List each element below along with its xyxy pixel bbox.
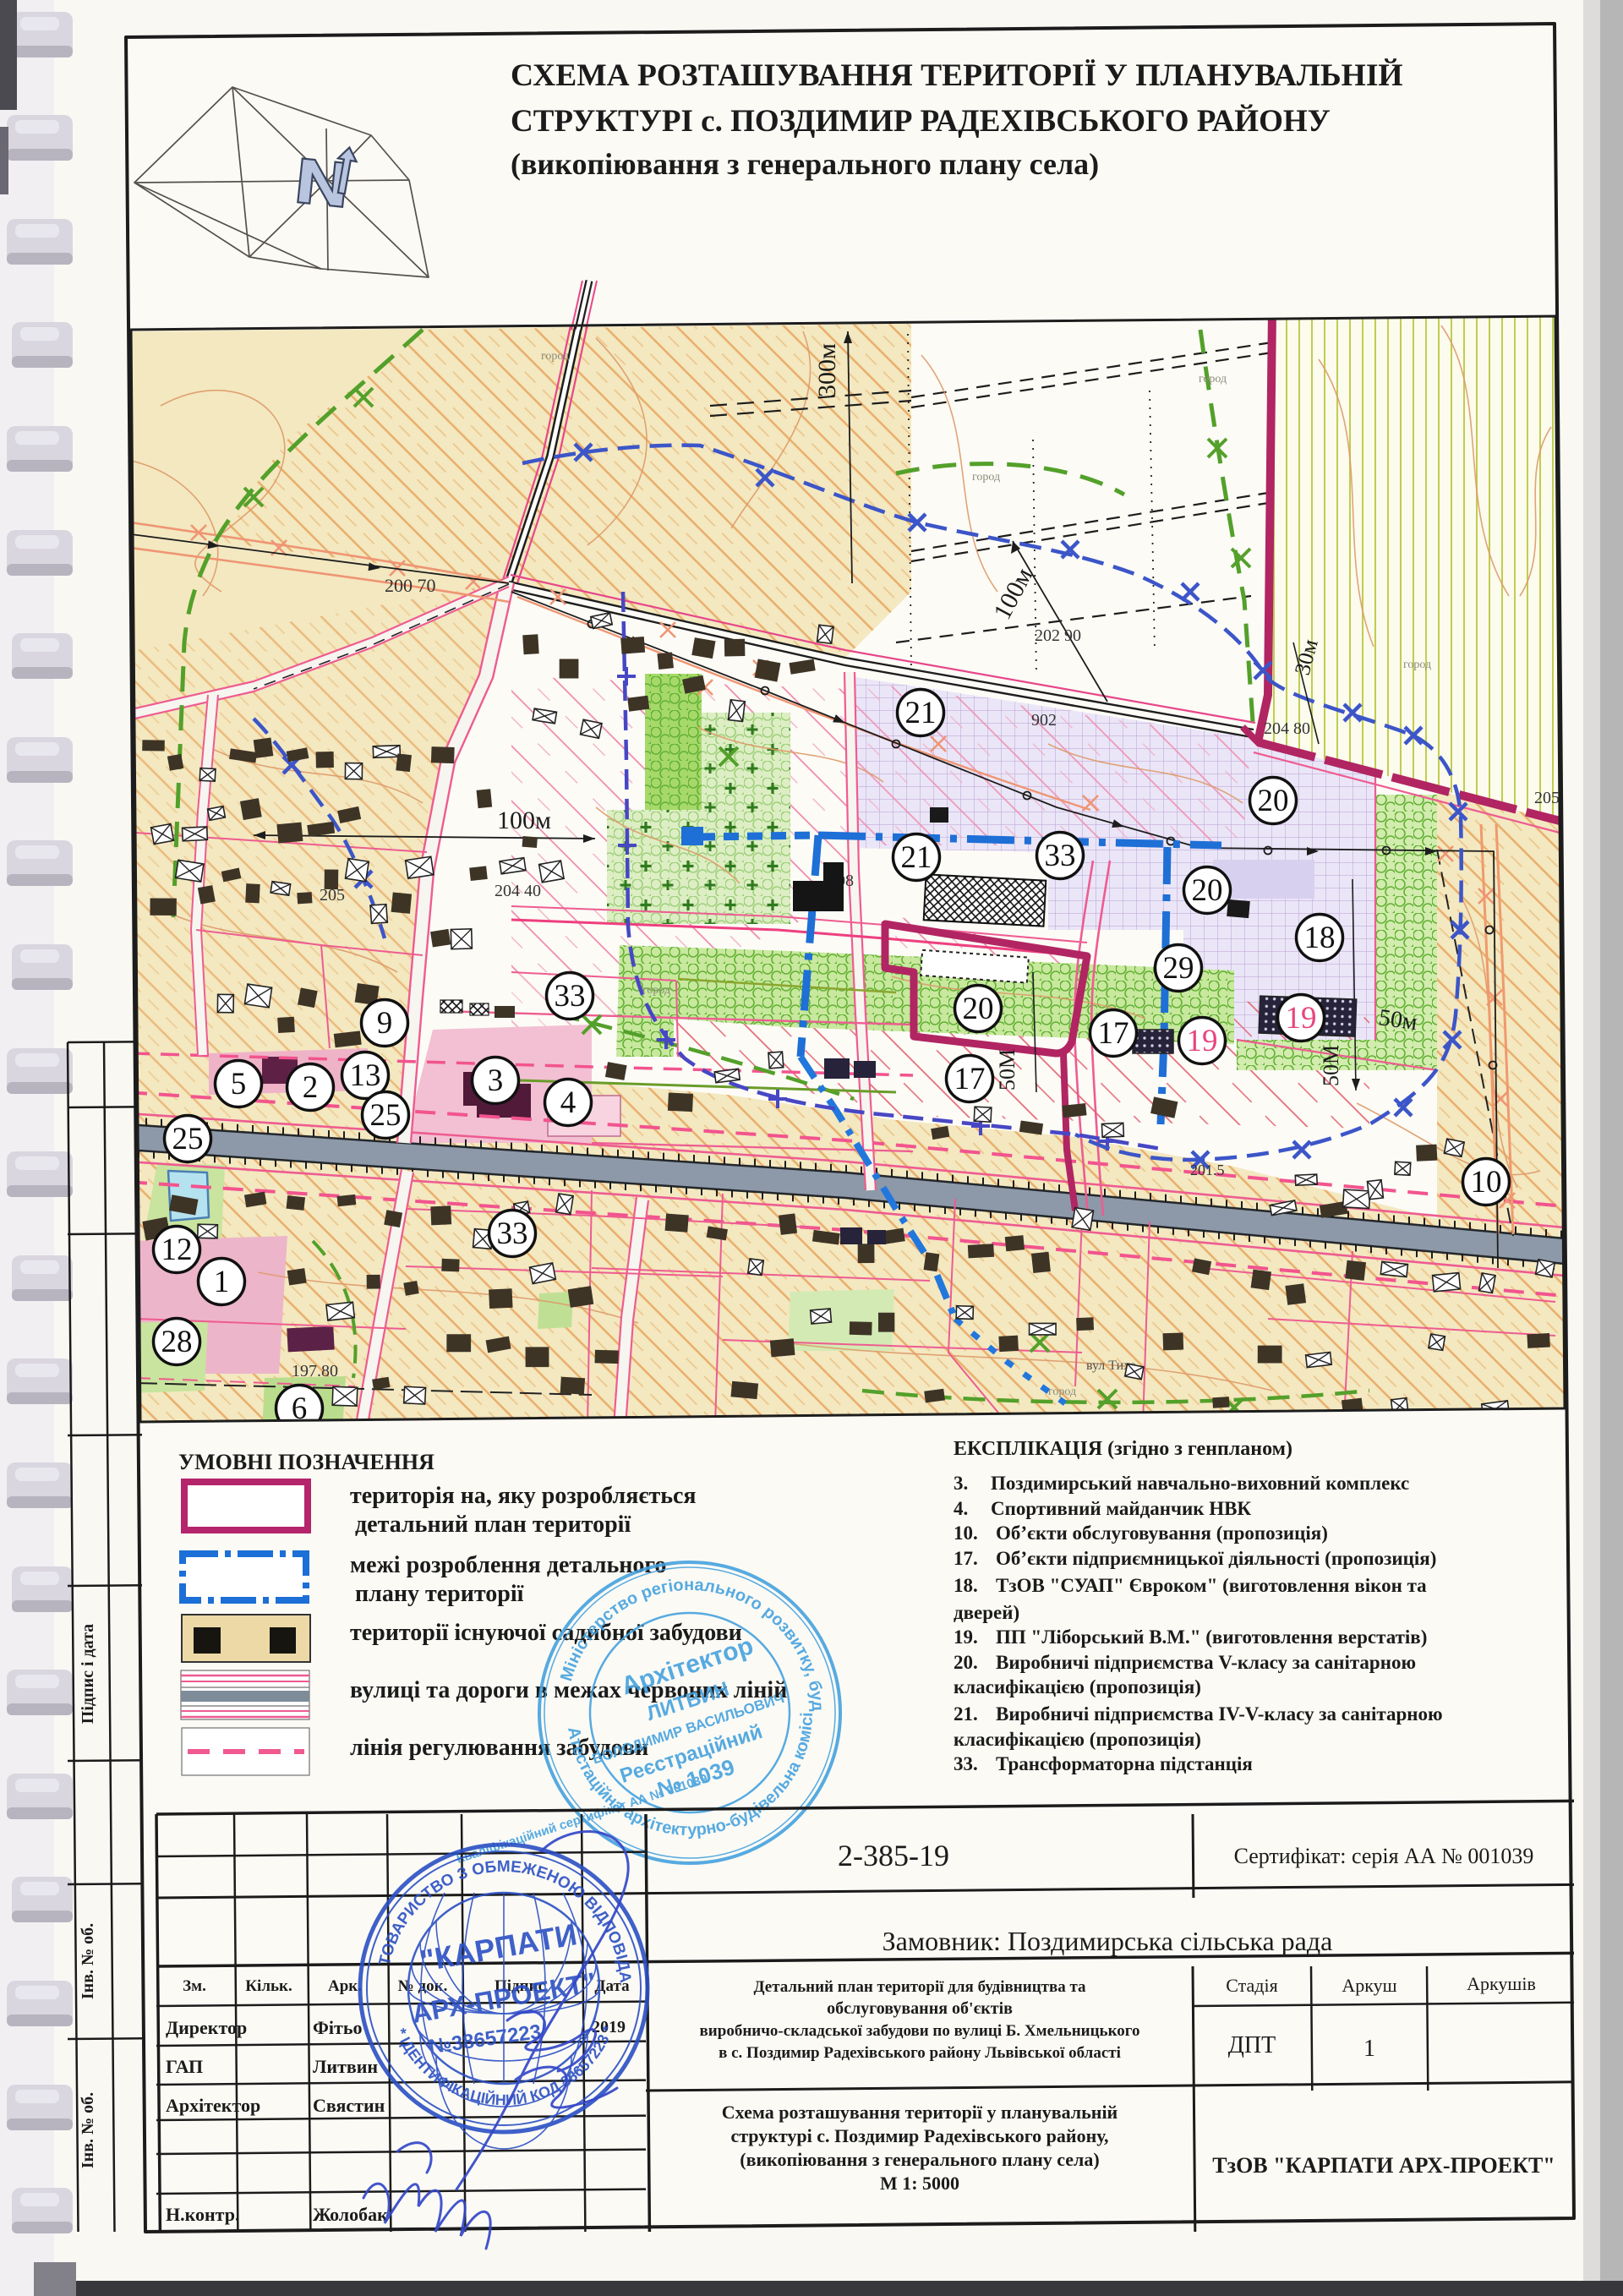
svg-text:20.: 20. [954,1652,978,1673]
svg-text:город: город [642,984,670,997]
svg-text:10.: 10. [954,1522,978,1544]
svg-text:території існуючої садибної за: території існуючої садибної забудови [350,1620,742,1646]
svg-text:Обʼєкти обслуговування (пропоз: Обʼєкти обслуговування (пропозиція) [996,1522,1328,1544]
svg-text:33.: 33. [954,1753,978,1774]
svg-text:20: 20 [963,992,994,1026]
svg-text:20: 20 [1192,873,1223,908]
svg-text:Архітектор: Архітектор [166,2095,260,2116]
svg-text:Фітьо: Фітьо [313,2017,362,2038]
svg-text:Свястин: Свястин [313,2095,385,2116]
svg-text:детальний план території: детальний план території [355,1512,631,1538]
svg-text:21: 21 [905,696,937,730]
svg-text:город: город [1403,659,1431,671]
svg-text:18.: 18. [954,1575,978,1596]
svg-text:Аркуш: Аркуш [1342,1975,1396,1996]
svg-text:21: 21 [901,840,932,875]
svg-text:класифікацією (пропозиція): класифікацією (пропозиція) [954,1729,1201,1750]
svg-text:18: 18 [1304,921,1336,955]
svg-text:2-385-19: 2-385-19 [838,1839,949,1872]
svg-text:Обʼєкти підприємницької діяльн: Обʼєкти підприємницької діяльності (проп… [996,1548,1436,1569]
svg-text:50М: 50М [1319,1045,1343,1086]
svg-text:1: 1 [1363,2036,1375,2062]
svg-text:300м: 300м [813,343,841,397]
svg-text:3: 3 [488,1063,504,1098]
svg-text:Жолобак: Жолобак [313,2204,388,2225]
svg-text:М 1: 5000: М 1: 5000 [880,2173,959,2194]
svg-text:Аркушів: Аркушів [1467,1973,1536,1994]
svg-text:12: 12 [161,1233,193,1267]
svg-text:Кільк.: Кільк. [245,1977,292,1995]
svg-text:город: город [972,471,1000,484]
svg-text:(викопіювання з генерального п: (викопіювання з генерального плану села) [740,2149,1099,2170]
svg-text:Замовник: Поздимирська сільськ: Замовник: Поздимирська сільська рада [883,1926,1333,1956]
svg-text:СХЕМА РОЗТАШУВАННЯ ТЕРИТОРІЇ У: СХЕМА РОЗТАШУВАННЯ ТЕРИТОРІЇ У ПЛАНУВАЛЬ… [511,57,1403,93]
svg-text:13: 13 [350,1058,381,1093]
svg-text:Поздимирський навчально-виховн: Поздимирський навчально-виховний комплек… [991,1473,1409,1494]
svg-text:17: 17 [1098,1016,1129,1051]
svg-text:в с. Поздимир Радехівського ра: в с. Поздимир Радехівського району Львів… [719,2044,1121,2062]
svg-text:50м: 50м [1377,1004,1419,1036]
svg-text:територія на, яку розробляєтьс: територія на, яку розробляється [350,1483,697,1509]
svg-text:Зм.: Зм. [183,1977,206,1995]
svg-text:2: 2 [303,1070,319,1105]
svg-text:Литвин: Литвин [313,2056,378,2077]
svg-text:Виробничі підприємства V-класу: Виробничі підприємства V-класу за саніта… [996,1652,1416,1673]
svg-text:4.: 4. [954,1498,968,1519]
svg-text:9: 9 [377,1006,393,1041]
svg-text:4: 4 [560,1085,577,1120]
svg-text:50М: 50М [995,1049,1019,1091]
svg-text:Підпис і дата: Підпис і дата [79,1624,97,1724]
svg-text:УМОВНІ ПОЗНАЧЕННЯ: УМОВНІ ПОЗНАЧЕННЯ [178,1450,434,1474]
svg-text:город: город [1048,1386,1076,1398]
svg-text:ГАП: ГАП [166,2056,203,2077]
svg-text:межі розроблення детального: межі розроблення детального [350,1552,666,1578]
svg-text:5: 5 [231,1067,247,1102]
svg-text:(викопіювання з генерального п: (викопіювання з генерального плану села) [511,147,1099,181]
svg-text:виробничо-складської забудови: виробничо-складської забудови по вулиці … [700,2022,1140,2040]
svg-text:ТзОВ "СУАП" Євроком" (виготовл: ТзОВ "СУАП" Євроком" (виготовлення вікон… [996,1575,1427,1596]
svg-text:ДПТ: ДПТ [1228,2032,1276,2058]
svg-text:Спортивний майданчик НВК: Спортивний майданчик НВК [991,1498,1251,1519]
svg-text:29: 29 [1163,951,1194,986]
svg-text:197.80: 197.80 [292,1362,338,1380]
svg-text:Арк.: Арк. [328,1977,362,1995]
svg-text:33: 33 [1045,839,1076,873]
svg-text:обслуговування об'єктів: обслуговування об'єктів [827,1999,1013,2018]
svg-text:19.: 19. [954,1626,978,1648]
svg-text:902: 902 [1031,711,1057,730]
svg-text:1: 1 [214,1265,230,1299]
svg-text:20: 20 [1258,784,1289,818]
svg-text:204 40: 204 40 [495,882,541,900]
svg-text:202 90: 202 90 [1035,626,1081,645]
svg-text:21.: 21. [954,1703,978,1725]
svg-text:ТзОВ "КАРПАТИ АРХ-ПРОЕКТ": ТзОВ "КАРПАТИ АРХ-ПРОЕКТ" [1212,2153,1555,2178]
svg-text:19: 19 [1286,1001,1317,1036]
svg-text:200 70: 200 70 [385,575,436,596]
svg-text:плану території: плану території [355,1581,524,1607]
svg-text:100м: 100м [497,806,551,834]
svg-text:Трансформаторна підстанція: Трансформаторна підстанція [996,1753,1253,1774]
svg-text:город: город [541,350,569,363]
svg-text:Виробничі підприємства IV-V-кл: Виробничі підприємства IV-V-класу за сан… [996,1703,1443,1725]
svg-text:33: 33 [497,1216,528,1251]
svg-text:ЕКСПЛІКАЦІЯ (згідно з генплано: ЕКСПЛІКАЦІЯ (згідно з генпланом) [954,1438,1292,1460]
svg-text:3.: 3. [954,1473,968,1494]
svg-text:204 80: 204 80 [1264,719,1310,738]
svg-text:33: 33 [555,979,586,1014]
svg-text:структурі с. Поздимир Радехівс: структурі с. Поздимир Радехівського райо… [730,2125,1108,2146]
svg-text:ПП "Ліборський В.М." (виготовл: ПП "Ліборський В.М." (виготовлення верст… [996,1626,1427,1648]
svg-text:Н.контр.: Н.контр. [166,2204,239,2225]
svg-text:25: 25 [370,1098,402,1133]
svg-text:201.5: 201.5 [1190,1162,1225,1178]
svg-text:Інв. № об.: Інв. № об. [79,1923,97,1999]
svg-text:дверей): дверей) [954,1602,1019,1623]
svg-text:Інв. № об.: Інв. № об. [79,2092,97,2168]
svg-text:19: 19 [1187,1024,1218,1058]
svg-text:28: 28 [161,1325,193,1359]
svg-text:17.: 17. [954,1548,978,1569]
svg-text:Сертифікат: серія АА № 001039: Сертифікат: серія АА № 001039 [1234,1844,1534,1868]
svg-text:Детальний план території для б: Детальний план території для будівництва… [753,1978,1086,1996]
svg-text:№ док.: № док. [398,1977,448,1995]
svg-text:Директор: Директор [166,2017,247,2038]
svg-text:17: 17 [954,1062,986,1096]
svg-text:10: 10 [1471,1165,1502,1200]
svg-text:Схема розташування території у: Схема розташування території у плануваль… [722,2102,1118,2123]
svg-text:город: город [1199,373,1227,385]
svg-text:класифікацією (пропозиція): класифікацією (пропозиція) [954,1676,1201,1697]
svg-text:СТРУКТУРІ с. ПОЗДИМИР РАДЕХІВС: СТРУКТУРІ с. ПОЗДИМИР РАДЕХІВСЬКОГО РАЙО… [511,103,1331,139]
svg-text:25: 25 [172,1122,204,1156]
svg-text:Стадія: Стадія [1226,1975,1277,1996]
